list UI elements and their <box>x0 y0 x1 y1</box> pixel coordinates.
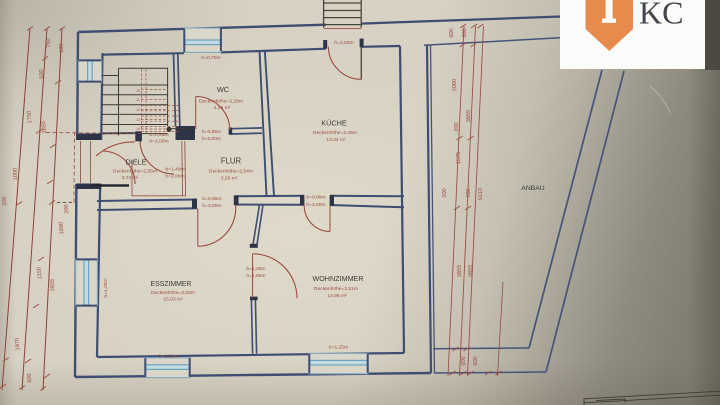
svg-text:9110: 9110 <box>478 188 484 200</box>
svg-text:3855: 3855 <box>50 279 57 292</box>
svg-text:1000: 1000 <box>13 168 20 181</box>
svg-text:1575: 1575 <box>456 152 462 165</box>
svg-text:200: 200 <box>454 122 460 132</box>
svg-text:1890: 1890 <box>59 222 66 235</box>
svg-text:600: 600 <box>39 69 46 79</box>
svg-text:h=0,70m: h=0,70m <box>201 55 220 61</box>
svg-text:KC: KC <box>639 0 683 31</box>
svg-text:FLUR: FLUR <box>221 157 242 166</box>
svg-text:Deckenhöhe=2,45m: Deckenhöhe=2,45m <box>313 130 357 136</box>
svg-text:12: 12 <box>136 108 140 112</box>
svg-text:ESSZIMMER: ESSZIMMER <box>151 281 192 288</box>
svg-text:2080: 2080 <box>452 79 458 92</box>
svg-text:3855: 3855 <box>468 265 474 278</box>
svg-text:b=1,25m: b=1,25m <box>329 345 348 351</box>
svg-text:3855: 3855 <box>457 265 463 278</box>
svg-text:3855: 3855 <box>41 121 48 134</box>
svg-text:h=2,00m: h=2,00m <box>165 174 184 180</box>
svg-text:3,29 m²: 3,29 m² <box>221 176 238 182</box>
svg-text:b=1,25m: b=1,25m <box>159 354 178 360</box>
svg-text:h=2,00m: h=2,00m <box>202 203 221 209</box>
svg-text:b=0,85m: b=0,85m <box>202 129 221 135</box>
svg-text:1150: 1150 <box>37 267 44 279</box>
svg-text:10: 10 <box>136 89 140 93</box>
svg-text:13: 13 <box>136 118 140 122</box>
svg-text:600: 600 <box>462 28 468 38</box>
svg-text:750: 750 <box>46 38 53 48</box>
svg-text:KÜCHE: KÜCHE <box>321 119 347 128</box>
svg-text:3,72 m²: 3,72 m² <box>122 175 139 181</box>
svg-text:WC: WC <box>217 85 230 94</box>
svg-text:3855: 3855 <box>466 110 472 123</box>
svg-text:b=0,96m: b=0,96m <box>202 196 221 202</box>
svg-text:14: 14 <box>136 127 140 131</box>
svg-text:Deckenhöhe=2,54m: Deckenhöhe=2,54m <box>209 169 253 175</box>
svg-text:600: 600 <box>27 373 34 383</box>
svg-text:b=1,25m: b=1,25m <box>246 266 265 272</box>
svg-text:600: 600 <box>461 356 467 366</box>
svg-text:200: 200 <box>64 204 71 214</box>
svg-text:600: 600 <box>59 43 66 53</box>
svg-text:WOHNZIMMER: WOHNZIMMER <box>312 274 363 283</box>
svg-text:ANBAU: ANBAU <box>521 185 545 192</box>
svg-text:200: 200 <box>2 196 9 206</box>
svg-text:Deckenhöhe=2,28m: Deckenhöhe=2,28m <box>199 99 243 105</box>
svg-text:b=0,88m: b=0,88m <box>306 195 325 201</box>
svg-text:h=1,95m: h=1,95m <box>246 273 265 279</box>
svg-text:1750: 1750 <box>27 111 34 124</box>
svg-text:14,96 m²: 14,96 m² <box>327 293 347 299</box>
svg-text:13,34 m²: 13,34 m² <box>326 137 346 143</box>
svg-text:200: 200 <box>442 188 448 198</box>
svg-text:200: 200 <box>466 188 472 198</box>
svg-text:DIELE: DIELE <box>125 158 146 167</box>
svg-text:Deckenhöhe=2,55m: Deckenhöhe=2,55m <box>113 169 157 175</box>
svg-text:11: 11 <box>136 98 140 102</box>
svg-text:b=0,95m: b=0,95m <box>149 132 168 138</box>
svg-text:h=2,00m: h=2,00m <box>149 139 168 145</box>
svg-text:Deckenhöhe=2,53m: Deckenhöhe=2,53m <box>151 290 195 296</box>
svg-text:b=1,40m: b=1,40m <box>165 167 184 173</box>
svg-text:4,26 m²: 4,26 m² <box>214 105 231 111</box>
svg-text:600: 600 <box>473 356 479 366</box>
svg-text:b=1,25m: b=1,25m <box>103 278 109 297</box>
svg-text:1970: 1970 <box>15 338 22 351</box>
svg-text:Deckenhöhe=2,51m: Deckenhöhe=2,51m <box>314 286 358 292</box>
svg-text:h=2,00m: h=2,00m <box>306 202 325 208</box>
svg-text:15,03 m²: 15,03 m² <box>163 297 183 303</box>
svg-text:h=2,00m: h=2,00m <box>334 40 353 46</box>
svg-text:600: 600 <box>449 28 455 38</box>
svg-text:h=2,00m: h=2,00m <box>202 136 221 142</box>
